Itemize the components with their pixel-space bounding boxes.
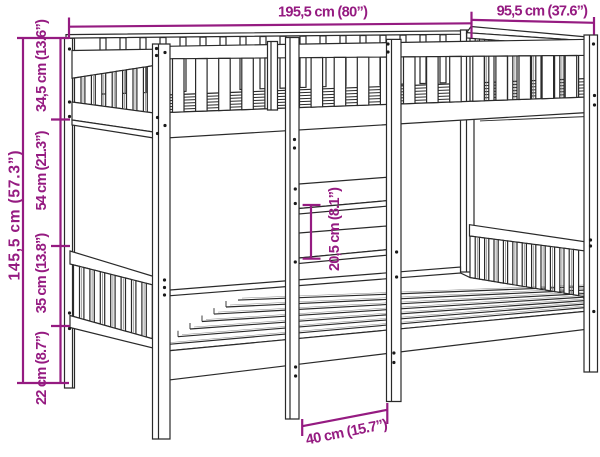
svg-text:35 cm (13.8”): 35 cm (13.8”) (34, 233, 50, 314)
svg-text:145,5 cm (57.3”): 145,5 cm (57.3”) (7, 151, 24, 281)
svg-text:22 cm (8.7”): 22 cm (8.7”) (34, 331, 50, 405)
svg-text:195,5 cm (80”): 195,5 cm (80”) (278, 4, 368, 20)
svg-text:54 cm (21.3”): 54 cm (21.3”) (34, 130, 50, 210)
svg-text:20,5 cm (8.1”): 20,5 cm (8.1”) (327, 187, 343, 271)
svg-text:34,5 cm (13.6”): 34,5 cm (13.6”) (34, 19, 50, 112)
svg-text:95,5 cm (37.6”): 95,5 cm (37.6”) (497, 4, 589, 20)
